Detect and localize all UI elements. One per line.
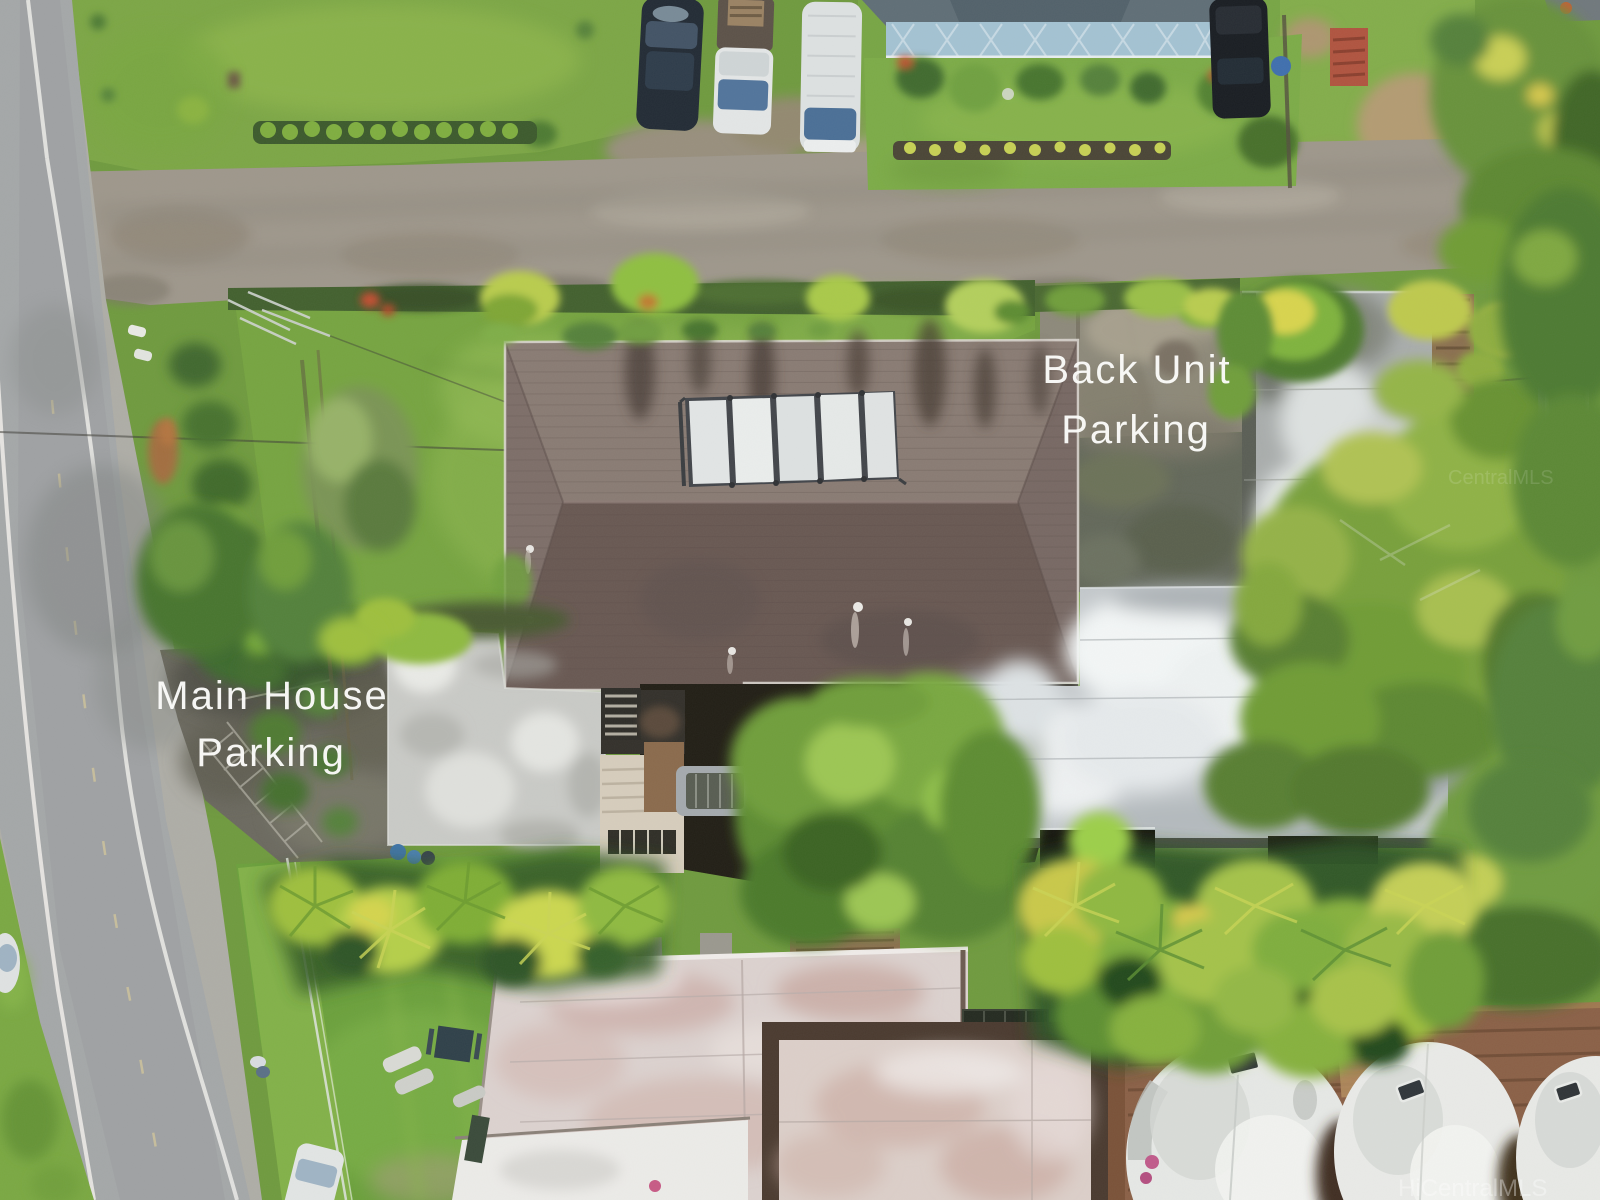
svg-text:HiCentralMLS: HiCentralMLS — [1398, 1175, 1547, 1200]
svg-text:Main House: Main House — [155, 674, 388, 718]
svg-text:CentralMLS: CentralMLS — [1448, 467, 1554, 489]
svg-text:Parking: Parking — [196, 731, 346, 775]
svg-text:Back Unit: Back Unit — [1042, 348, 1231, 392]
svg-text:Parking: Parking — [1061, 408, 1211, 452]
